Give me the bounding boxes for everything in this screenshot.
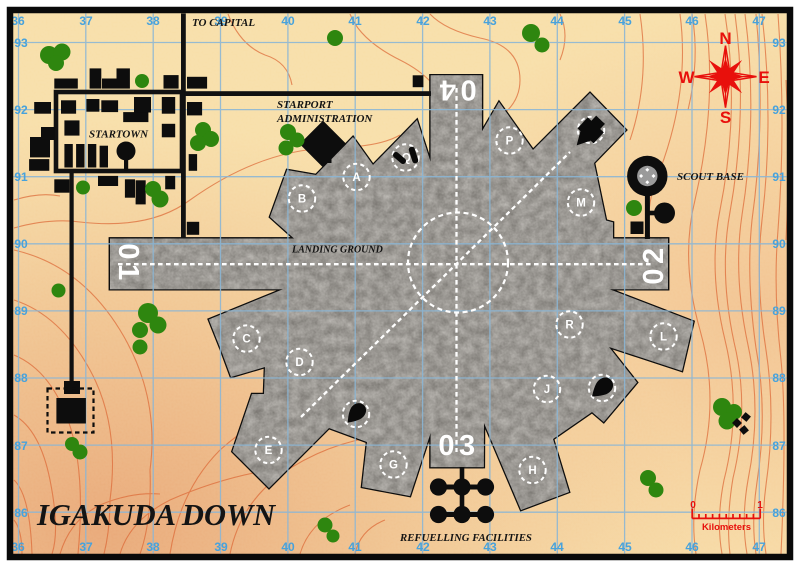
svg-text:TO CAPITAL: TO CAPITAL xyxy=(192,17,255,29)
svg-text:01: 01 xyxy=(112,243,144,284)
svg-text:E: E xyxy=(758,68,769,87)
svg-text:ADMINISTRATION: ADMINISTRATION xyxy=(276,113,373,125)
svg-text:41: 41 xyxy=(348,540,362,554)
svg-text:41: 41 xyxy=(348,14,362,28)
svg-text:47: 47 xyxy=(752,14,766,28)
svg-text:P: P xyxy=(506,136,514,148)
svg-text:89: 89 xyxy=(14,304,28,318)
svg-text:37: 37 xyxy=(79,540,93,554)
svg-text:89: 89 xyxy=(772,304,786,318)
svg-text:N: N xyxy=(719,29,731,48)
svg-text:03: 03 xyxy=(438,430,479,462)
svg-text:W: W xyxy=(678,68,695,87)
svg-text:40: 40 xyxy=(281,540,295,554)
svg-text:46: 46 xyxy=(685,14,699,28)
svg-text:42: 42 xyxy=(416,14,430,28)
svg-text:STARTOWN: STARTOWN xyxy=(89,129,149,141)
svg-text:92: 92 xyxy=(772,103,786,117)
svg-text:86: 86 xyxy=(14,506,28,520)
svg-text:90: 90 xyxy=(14,237,28,251)
svg-text:J: J xyxy=(544,384,550,396)
svg-text:40: 40 xyxy=(281,14,295,28)
svg-text:87: 87 xyxy=(14,439,28,453)
svg-text:45: 45 xyxy=(618,540,632,554)
svg-text:93: 93 xyxy=(772,36,786,50)
svg-text:92: 92 xyxy=(14,103,28,117)
svg-text:91: 91 xyxy=(14,170,28,184)
svg-text:36: 36 xyxy=(11,14,25,28)
svg-text:88: 88 xyxy=(772,371,786,385)
svg-text:88: 88 xyxy=(14,371,28,385)
svg-text:H: H xyxy=(528,465,536,477)
svg-text:SCOUT BASE: SCOUT BASE xyxy=(677,171,744,183)
svg-text:STARPORT: STARPORT xyxy=(277,99,334,111)
svg-text:86: 86 xyxy=(772,506,786,520)
svg-text:38: 38 xyxy=(146,540,160,554)
svg-text:D: D xyxy=(295,357,303,369)
svg-text:46: 46 xyxy=(685,540,699,554)
svg-text:Kilometers: Kilometers xyxy=(702,522,751,533)
svg-text:91: 91 xyxy=(772,170,786,184)
svg-text:S: S xyxy=(720,108,731,127)
svg-text:A: A xyxy=(352,172,360,184)
svg-text:43: 43 xyxy=(483,14,497,28)
svg-text:R: R xyxy=(565,320,574,332)
svg-text:90: 90 xyxy=(772,237,786,251)
svg-text:IGAKUDA DOWN: IGAKUDA DOWN xyxy=(36,498,276,532)
svg-text:04: 04 xyxy=(435,74,476,106)
svg-text:M: M xyxy=(576,198,586,210)
svg-text:38: 38 xyxy=(146,14,160,28)
svg-text:93: 93 xyxy=(14,36,28,50)
svg-text:02: 02 xyxy=(638,243,670,284)
svg-text:0: 0 xyxy=(690,500,696,511)
svg-text:E: E xyxy=(265,445,273,457)
svg-text:C: C xyxy=(242,334,250,346)
svg-text:47: 47 xyxy=(752,540,766,554)
svg-text:87: 87 xyxy=(772,439,786,453)
svg-text:REFUELLING FACILITIES: REFUELLING FACILITIES xyxy=(399,532,532,544)
svg-text:36: 36 xyxy=(11,540,25,554)
svg-text:LANDING GROUND: LANDING GROUND xyxy=(291,245,383,256)
svg-text:1: 1 xyxy=(757,500,763,511)
svg-text:G: G xyxy=(389,460,398,472)
svg-text:44: 44 xyxy=(550,14,564,28)
svg-text:L: L xyxy=(660,332,667,344)
svg-text:39: 39 xyxy=(214,540,228,554)
svg-text:37: 37 xyxy=(79,14,93,28)
svg-text:B: B xyxy=(298,194,306,206)
svg-text:45: 45 xyxy=(618,14,632,28)
svg-text:44: 44 xyxy=(550,540,564,554)
